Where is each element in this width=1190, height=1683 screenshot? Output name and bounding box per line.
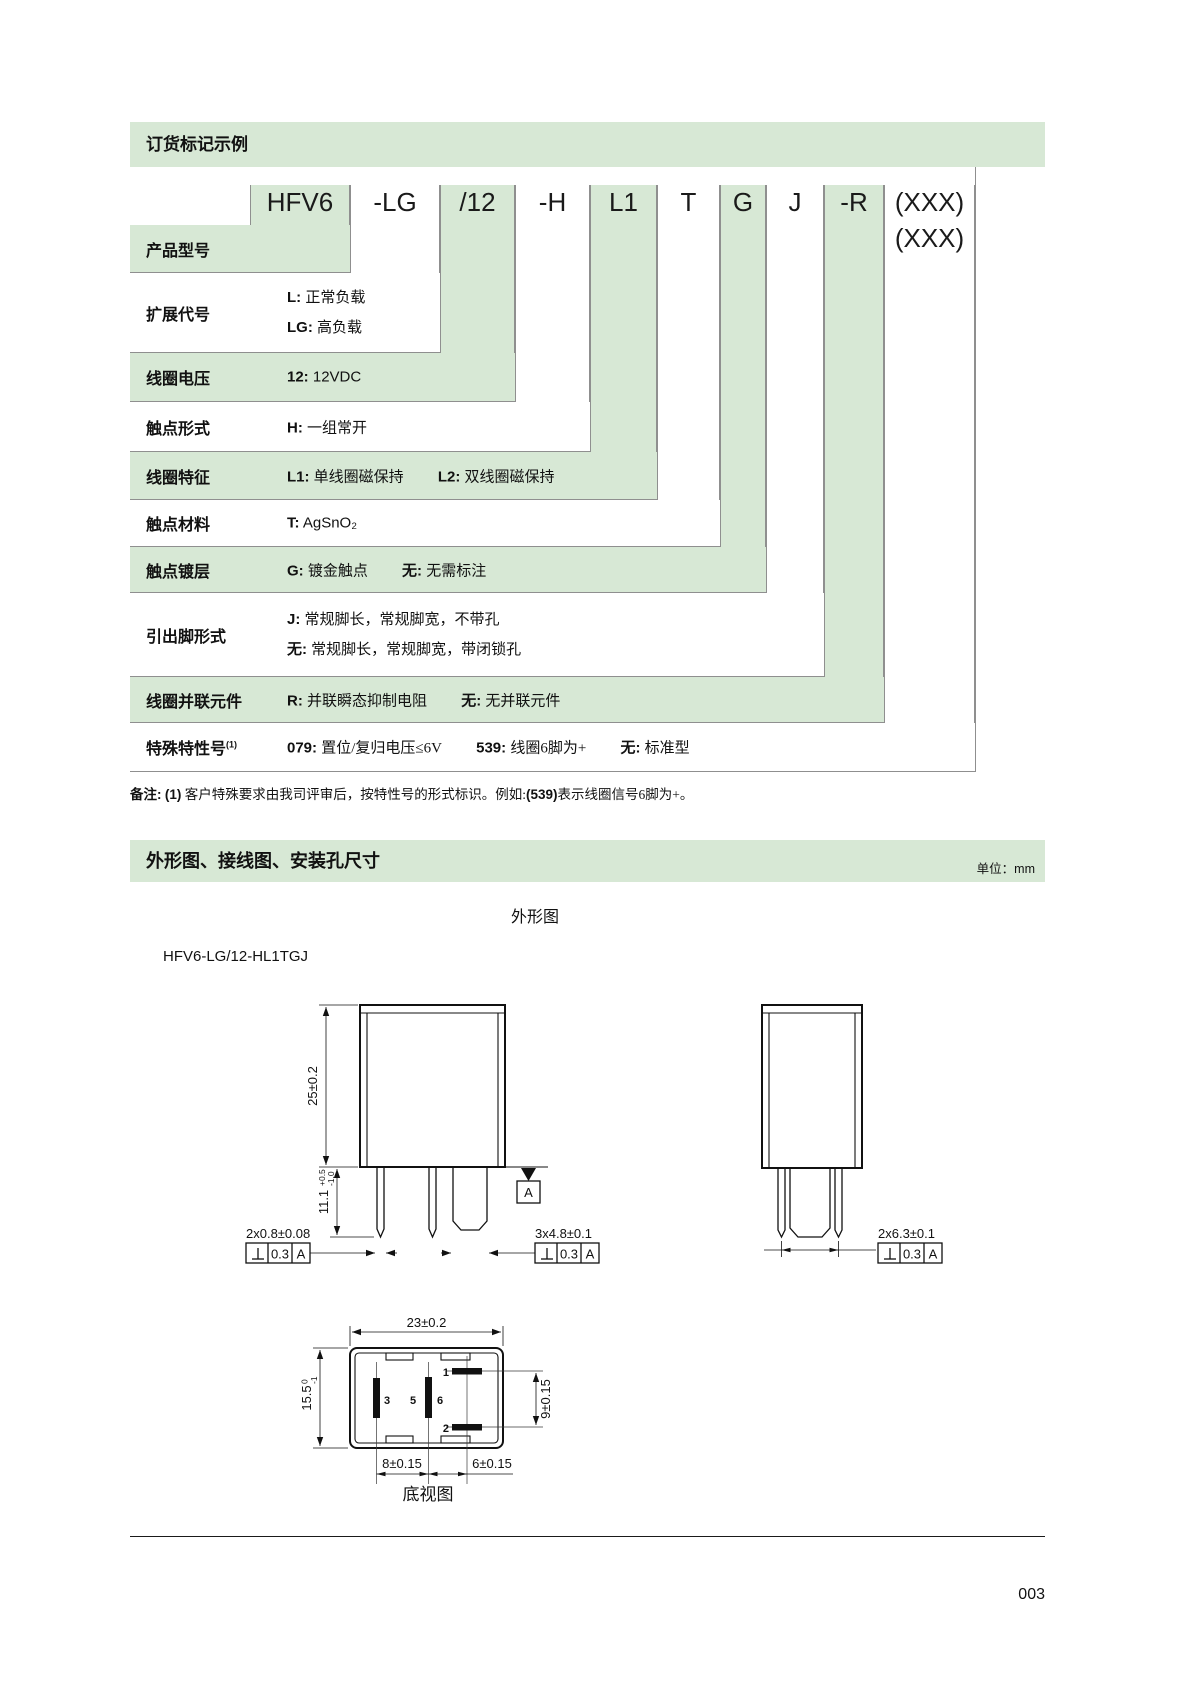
front-view-drawing: 25±0.2 A 11.1 +0.5 -1.0 2x0.8±0.08 xyxy=(246,1005,599,1263)
perpendicularity-icon xyxy=(884,1248,896,1259)
svg-text:A: A xyxy=(297,1247,306,1262)
code-col-g: G xyxy=(720,185,766,547)
outline-drawing-title: 外形图 xyxy=(130,903,940,927)
relay-body-front xyxy=(360,1005,505,1167)
bottom-depth-dim: 15.5 xyxy=(299,1385,314,1410)
pin-length-dim: 11.1 xyxy=(316,1190,331,1214)
pin3-slot xyxy=(373,1378,380,1418)
order-row-product-model: 产品型号 xyxy=(130,225,350,273)
code-col-r: -R xyxy=(824,185,884,677)
front-height-dim: 25±0.2 xyxy=(305,1066,320,1106)
order-row-contact-form: 触点形式 H: 一组常开 xyxy=(130,402,590,452)
pin3-number: 3 xyxy=(384,1395,390,1407)
front-pin-thin-mid xyxy=(429,1167,436,1237)
code-col-l1: L1 xyxy=(590,185,657,452)
perpendicularity-icon xyxy=(252,1248,264,1259)
code-segment-12: /12 xyxy=(441,187,514,218)
outline-drawings-canvas: 25±0.2 A 11.1 +0.5 -1.0 2x0.8±0.08 xyxy=(0,925,1190,1520)
code-segment-xxx-line2: (XXX) xyxy=(885,223,974,254)
code-col-xxx: (XXX) (XXX) xyxy=(884,185,975,723)
perpendicularity-icon xyxy=(541,1248,553,1259)
pin5-number: 5 xyxy=(410,1395,416,1407)
pin1-slot xyxy=(452,1368,482,1375)
pin2-number: 2 xyxy=(443,1423,449,1435)
code-segment-hfv6: HFV6 xyxy=(251,187,349,218)
code-segment-g: G xyxy=(721,187,765,218)
pin1-number: 1 xyxy=(443,1367,449,1379)
order-row-extension-code: 扩展代号 L: 正常负载 LG: 高负载 xyxy=(130,273,440,353)
small-pin-dim: 2x0.8±0.08 xyxy=(246,1226,310,1241)
code-col-hfv6: HFV6 xyxy=(250,185,350,225)
tolerance-frame-side-pin: 0.3 A xyxy=(878,1243,942,1263)
drawings-section-header: 外形图、接线图、安装孔尺寸 单位：mm xyxy=(130,840,1045,882)
order-row-contact-plating: 触点镀层 G: 镀金触点 无: 无需标注 xyxy=(130,547,766,593)
side-pin-blade xyxy=(790,1168,830,1237)
code-col-t: T xyxy=(657,185,720,500)
footer-rule xyxy=(130,1536,1045,1537)
order-row-terminal-type: 引出脚形式 J: 常规脚长，常规脚宽，不带孔 无: 常规脚长，常规脚宽，带闭锁孔 xyxy=(130,593,824,677)
side-pin-dim: 2x6.3±0.1 xyxy=(878,1226,935,1241)
ordering-section-header: 订货标记示例 xyxy=(130,122,1045,167)
svg-text:A: A xyxy=(929,1247,938,1262)
pin2-slot xyxy=(452,1424,482,1431)
code-segment-t: T xyxy=(658,187,719,218)
unit-note: 单位：mm xyxy=(977,858,1035,877)
table-right-border xyxy=(975,167,976,772)
bottom-width-dim: 23±0.2 xyxy=(407,1315,447,1330)
drawings-section-title: 外形图、接线图、安装孔尺寸 xyxy=(130,840,1045,882)
svg-text:0.3: 0.3 xyxy=(903,1247,921,1262)
side-view-drawing: 2x6.3±0.1 0.3 A xyxy=(762,1005,942,1263)
code-segment-j: J xyxy=(767,187,823,218)
tolerance-frame-small-pin: 0.3 A xyxy=(246,1243,310,1263)
page-number: 003 xyxy=(945,1586,1045,1604)
bottom-view-caption: 底视图 xyxy=(403,1485,454,1504)
order-row-special-code: 特殊特性号(1) 079: 置位/复归电压≤6V 539: 线圈6脚为+ 无: … xyxy=(130,723,975,772)
pin6-number: 6 xyxy=(437,1395,443,1407)
front-pin-blade xyxy=(453,1167,487,1230)
pitch-left-dim: 8±0.15 xyxy=(382,1456,422,1471)
svg-text:A: A xyxy=(586,1247,595,1262)
code-segment-r: -R xyxy=(825,187,883,218)
code-col-12: /12 xyxy=(440,185,515,353)
side-pin-thin-left xyxy=(778,1168,785,1237)
pitch-right-dim: 6±0.15 xyxy=(472,1456,512,1471)
code-segment-lg: -LG xyxy=(351,187,439,218)
code-segment-l1: L1 xyxy=(591,187,656,218)
blade-pin-dim: 3x4.8±0.1 xyxy=(535,1226,592,1241)
code-col-lg: -LG xyxy=(350,185,440,273)
bottom-depth-tol-dn: -1 xyxy=(309,1376,319,1384)
order-row-contact-material: 触点材料 T: AgSnO₂ xyxy=(130,500,720,547)
code-segment-h: -H xyxy=(516,187,589,218)
pin-length-tol-dn: -1.0 xyxy=(326,1171,336,1186)
front-pin-thin-left xyxy=(377,1167,384,1237)
order-note: 备注: (1) 客户特殊要求由我司评审后，按特性号的形式标识。例如:(539)表… xyxy=(130,783,693,803)
code-col-j: J xyxy=(766,185,824,593)
svg-text:0.3: 0.3 xyxy=(560,1247,578,1262)
datum-label: A xyxy=(524,1185,533,1200)
code-segment-xxx: (XXX) xyxy=(885,187,974,218)
bottom-depth-tol-up: 0 xyxy=(300,1379,310,1384)
order-row-coil-parallel-element: 线圈并联元件 R: 并联瞬态抑制电阻 无: 无并联元件 xyxy=(130,677,884,723)
code-col-h: -H xyxy=(515,185,590,402)
order-row-coil-feature: 线圈特征 L1: 单线圈磁保持 L2: 双线圈磁保持 xyxy=(130,452,657,500)
datum-triangle-icon xyxy=(521,1168,536,1181)
bottom-view-drawing: 1 2 3 5 6 23±0.2 15.5 0 -1 9±0.15 8±0.15… xyxy=(299,1315,553,1504)
side-pin-thin-right xyxy=(835,1168,842,1237)
order-row-coil-voltage: 线圈电压 12: 12VDC xyxy=(130,353,515,402)
pin5-slot xyxy=(425,1377,432,1418)
tolerance-frame-blade-pin: 0.3 A xyxy=(535,1243,599,1263)
coil-pin-pitch-dim: 9±0.15 xyxy=(538,1379,553,1419)
relay-body-side xyxy=(762,1005,862,1168)
ordering-section-title: 订货标记示例 xyxy=(130,122,1045,167)
svg-text:0.3: 0.3 xyxy=(271,1247,289,1262)
